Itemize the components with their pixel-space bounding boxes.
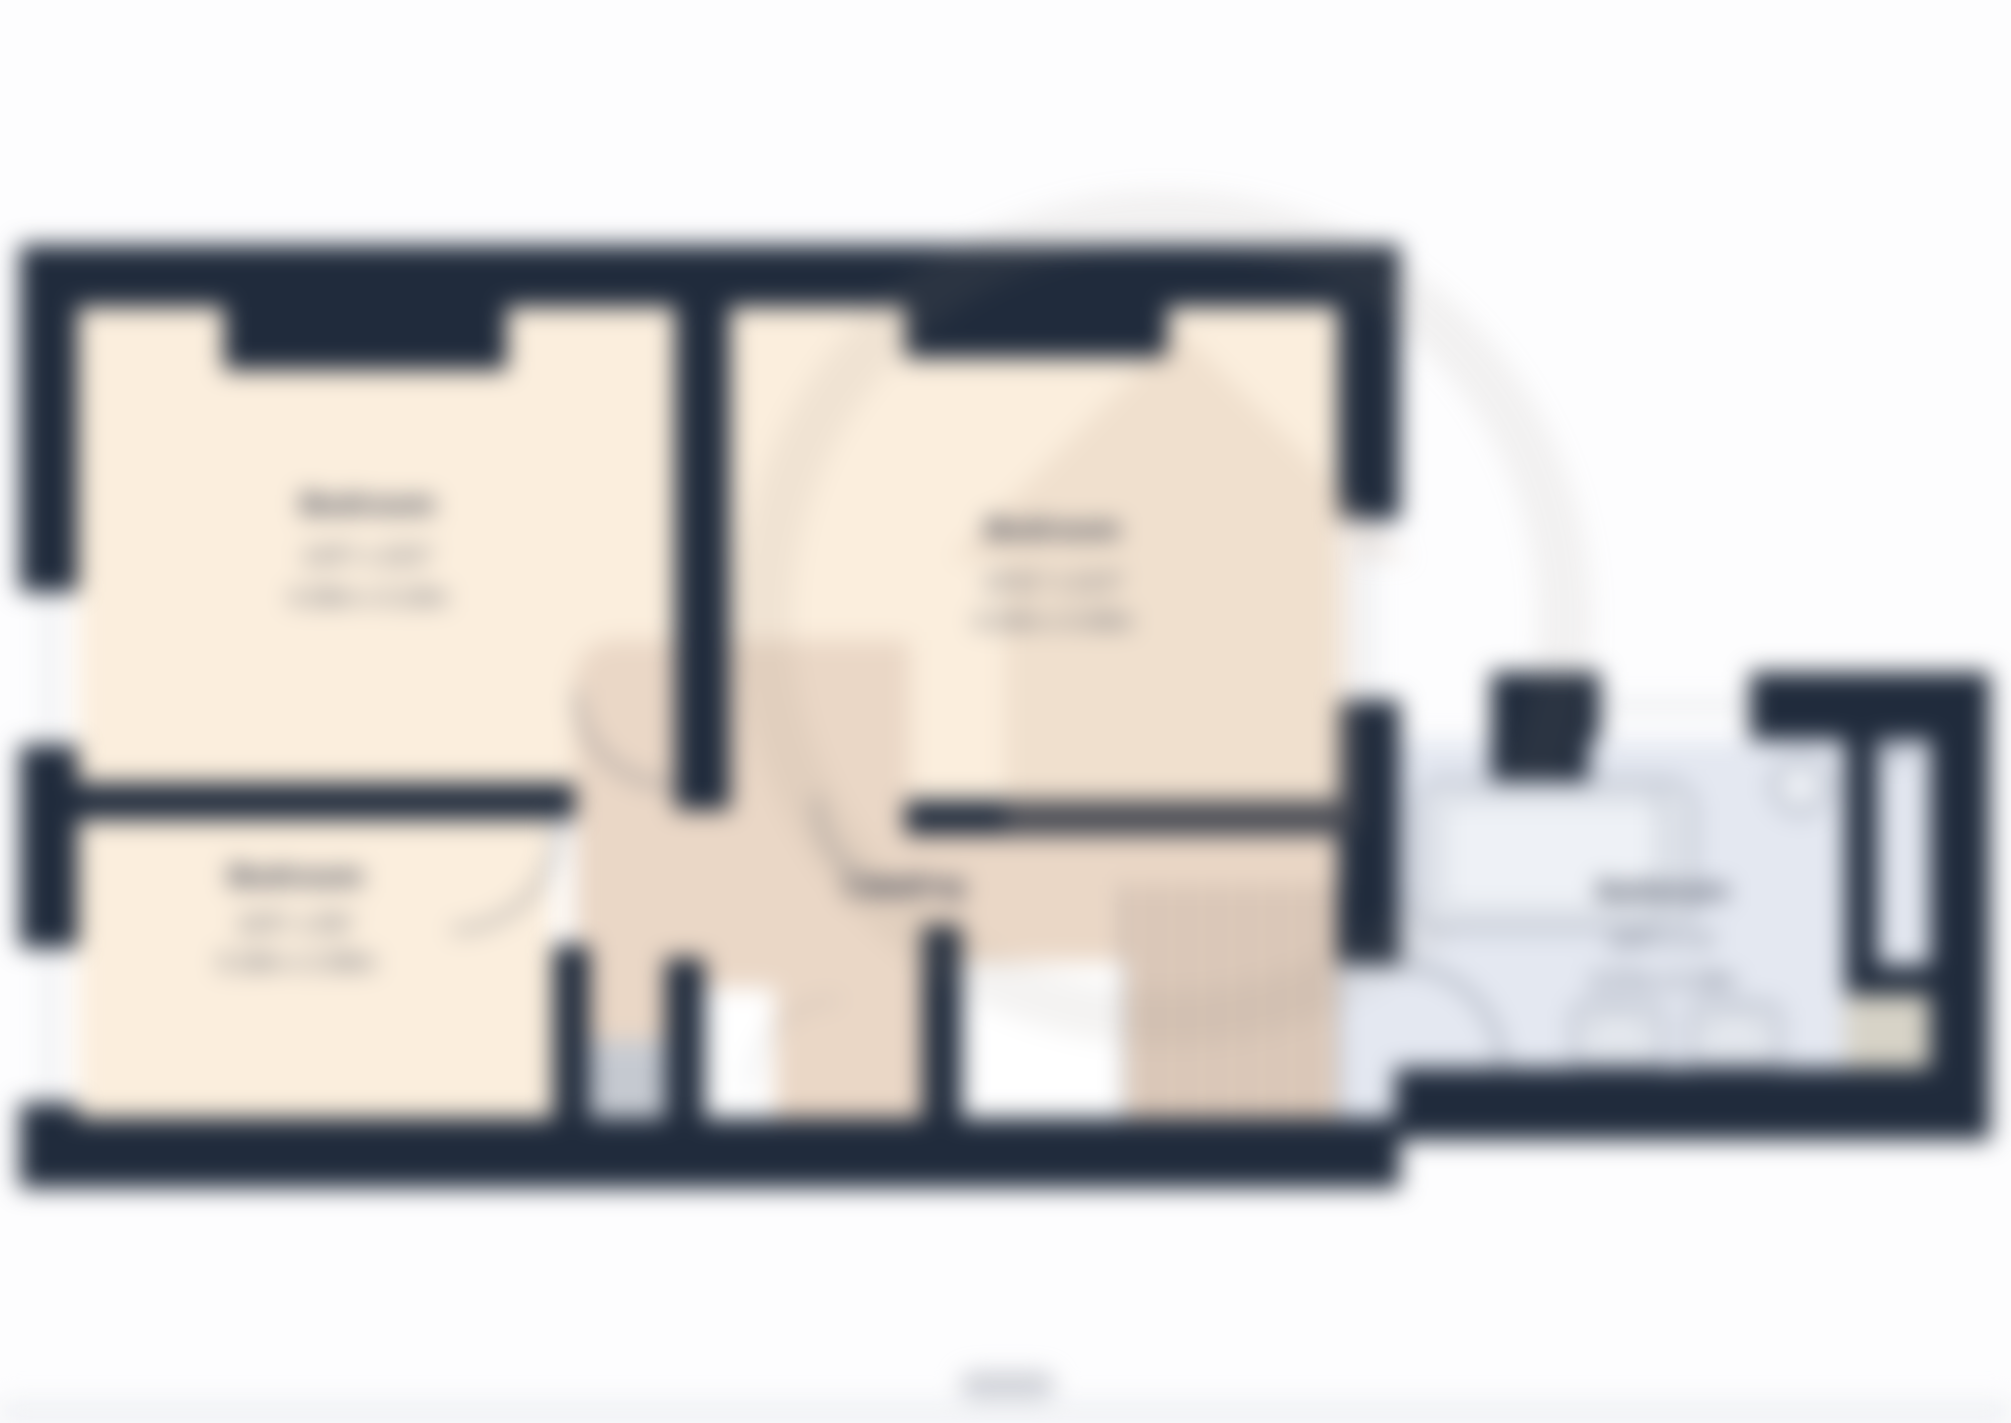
- bedroom-2-label: Bedroom: [985, 513, 1120, 547]
- bedroom-2-dim-imperial: 13'11" x 11'2": [982, 569, 1123, 597]
- bedroom-2-dim-metric: 4.24m x 3.40m: [974, 608, 1133, 636]
- bedroom-1-dim-imperial: 14'0" x 10'2": [302, 543, 434, 571]
- basin: [1774, 760, 1826, 812]
- landing-label: Landing: [845, 869, 965, 903]
- bathroom-dim-metric: 3.27m x 2.18m: [1590, 968, 1736, 994]
- footer-band: [0, 1398, 2011, 1423]
- bedroom-3-dim-metric: 3.18m x 2.90m: [217, 949, 376, 977]
- door-arc-landing-cupboard: [750, 1000, 840, 1090]
- bedroom-3-label: Bedroom: [228, 860, 363, 894]
- door-arc-bedroom-3: [452, 825, 557, 930]
- bedroom-1-label: Bedroom: [300, 488, 435, 522]
- bathroom-label: Bathroom: [1597, 876, 1729, 907]
- bedroom-1-dim-metric: 4.26m x 3.10m: [289, 584, 448, 612]
- cupboard-fitting: [1888, 744, 1906, 758]
- bathroom-dim-imperial: 10'9" x 7'2": [1609, 928, 1717, 954]
- door-arc-bedroom-1: [577, 690, 672, 785]
- plan-details-overlay: [0, 0, 2011, 1423]
- floorplan-blurred-layer: Bedroom 14'0" x 10'2" 4.26m x 3.10m Bedr…: [0, 0, 2011, 1423]
- bidet: [1692, 1005, 1778, 1065]
- bedroom-3-dim-imperial: 10'5" x 9'6": [237, 911, 355, 939]
- toilet: [1575, 1005, 1661, 1065]
- footer-mark: [960, 1372, 1055, 1398]
- door-arc-bathroom: [1400, 966, 1502, 1068]
- floorplan-page: Bedroom 14'0" x 10'2" 4.26m x 3.10m Bedr…: [0, 0, 2011, 1423]
